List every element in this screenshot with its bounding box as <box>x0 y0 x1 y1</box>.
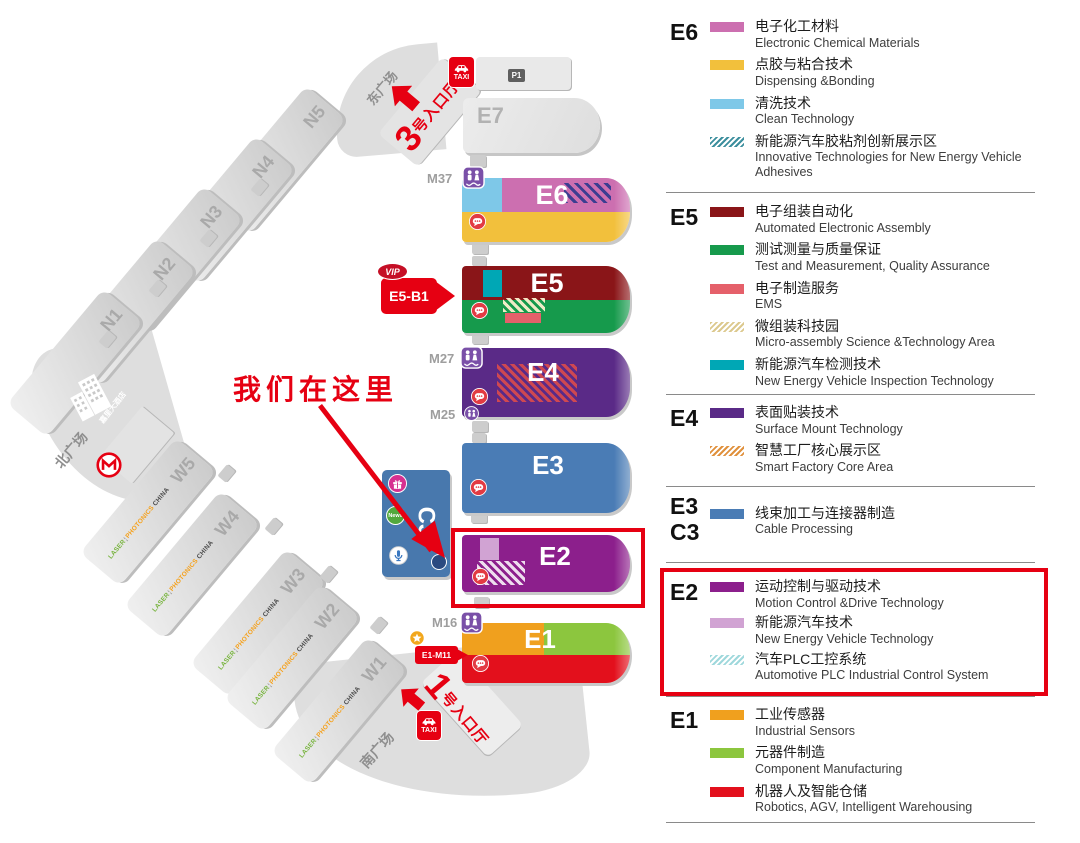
legend-section-e4: E4 表面贴装技术Surface Mount Technology 智慧工厂核心… <box>670 404 1042 481</box>
star-icon <box>409 630 425 646</box>
legend-zh: 工业传感器 <box>755 706 855 724</box>
legend-item: 线束加工与连接器制造Cable Processing <box>710 505 895 537</box>
legend-zh: 电子组装自动化 <box>755 203 931 221</box>
microphone-icon <box>389 546 408 565</box>
vip-gate-e5-b1: E5-B1 VIP <box>379 264 459 318</box>
taxi-car-icon <box>453 64 470 73</box>
hall-e6: E6 <box>462 178 630 242</box>
legend-zh: 新能源汽车检测技术 <box>755 356 994 374</box>
legend-code: E1 <box>670 707 698 733</box>
legend-swatch <box>710 245 744 255</box>
legend-zh: 线束加工与连接器制造 <box>755 505 895 523</box>
expo-floorplan: 东广场 北广场 南广场 嘉里大酒店 3号入口厅 1号入口厅 TAXI TAXI … <box>0 0 1080 843</box>
hall-e7: E7 <box>463 98 600 153</box>
info-dot-icon <box>431 554 447 570</box>
legend-item: 电子制造服务EMS <box>710 280 1042 312</box>
connector <box>264 517 282 536</box>
legend-en: Dispensing &Bonding <box>755 74 875 89</box>
hall-e3-label: E3 <box>518 449 578 481</box>
legend-item: 清洗技术Clean Technology <box>710 95 1042 127</box>
legend-divider <box>666 822 1035 823</box>
legend-section-e6: E6 电子化工材料Electronic Chemical Materials 点… <box>670 18 1042 186</box>
legend-zh: 元器件制造 <box>755 744 902 762</box>
legend-swatch <box>710 360 744 370</box>
legend-zh: 机器人及智能仓储 <box>755 783 972 801</box>
legend-section-e5: E5 电子组装自动化Automated Electronic Assembly … <box>670 203 1042 394</box>
legend-item: 机器人及智能仓储Robotics, AGV, Intelligent Wareh… <box>710 783 1042 815</box>
legend-code: E3C3 <box>670 493 699 546</box>
vip-arrow-icon <box>435 281 455 311</box>
connector <box>472 433 486 443</box>
connector <box>472 421 488 432</box>
hall-n4-label: N4 <box>248 151 279 182</box>
legend-item: 新能源汽车胶粘剂创新展示区Innovative Technologies for… <box>710 133 1042 180</box>
legend-section-e1: E1 工业传感器Industrial Sensors 元器件制造Componen… <box>670 706 1042 821</box>
info-bubble-icon-e4 <box>471 388 488 405</box>
legend-swatch <box>710 322 744 332</box>
hall-e4: E4 <box>462 348 630 417</box>
legend-divider <box>666 486 1035 487</box>
vip-gate-label: E5-B1 <box>381 278 437 314</box>
legend-en: New Energy Vehicle Inspection Technology <box>755 374 994 389</box>
e5-micro-assembly-zone <box>503 298 545 312</box>
e2-legend-highlight-box <box>660 568 1048 696</box>
hall-w5-label: W5 <box>166 453 199 487</box>
legend-swatch <box>710 509 744 519</box>
legend-zh: 电子制造服务 <box>755 280 839 298</box>
taxi-stand-north: TAXI <box>449 57 474 87</box>
legend-swatch <box>710 787 744 797</box>
legend-zh: 电子化工材料 <box>755 18 920 36</box>
legend-en: Robotics, AGV, Intelligent Warehousing <box>755 800 972 815</box>
gate-e1-m11: E1-M11 <box>406 628 476 670</box>
legend-code: E4 <box>670 405 698 431</box>
hall-e3: E3 <box>462 443 630 513</box>
gate-arrow-icon <box>457 649 468 661</box>
restroom-icon-m25 <box>464 406 479 421</box>
legend-item: 测试测量与质量保证Test and Measurement, Quality A… <box>710 241 1042 273</box>
hall-e6-label: E6 <box>522 178 582 212</box>
info-bubble-icon-e6 <box>469 213 486 230</box>
connector <box>472 243 488 254</box>
legend-zh: 点胶与粘合技术 <box>755 56 875 74</box>
legend-divider <box>666 192 1035 193</box>
legend-section-e3-c3: E3C3 线束加工与连接器制造Cable Processing <box>670 492 1042 550</box>
e5-ems-zone <box>505 313 541 323</box>
legend-en: Smart Factory Core Area <box>755 460 893 475</box>
legend-item: 智慧工厂核心展示区Smart Factory Core Area <box>710 442 1042 474</box>
legend-en: Test and Measurement, Quality Assurance <box>755 259 990 274</box>
hall-w1-label: W1 <box>357 652 390 686</box>
info-bubble-icon-e5 <box>471 302 488 319</box>
marker-m25-label: M25 <box>430 407 455 422</box>
legend-swatch <box>710 60 744 70</box>
connector <box>369 616 387 635</box>
connector <box>472 256 486 266</box>
gate-e1-m11-label: E1-M11 <box>415 646 458 664</box>
legend-item: 表面贴装技术Surface Mount Technology <box>710 404 1042 436</box>
laser-photonics-branding: LASER¦PHOTONICS CHINA <box>102 486 171 566</box>
taxi-car-icon <box>421 717 437 726</box>
legend-divider <box>666 562 1035 563</box>
connector <box>217 464 235 483</box>
gift-icon <box>388 474 407 493</box>
hall-w2-label: W2 <box>310 599 343 633</box>
legend-en: EMS <box>755 297 839 312</box>
vip-badge: VIP <box>377 263 408 280</box>
taxi-label: TAXI <box>454 74 469 81</box>
legend-swatch <box>710 710 744 720</box>
legend-zh: 测试测量与质量保证 <box>755 241 990 259</box>
legend-en: Cable Processing <box>755 522 895 537</box>
hall-w3-label: W3 <box>276 564 309 598</box>
legend-code: E6 <box>670 19 698 45</box>
legend-zh: 微组装科技园 <box>755 318 995 336</box>
hall-n2-label: N2 <box>149 253 180 284</box>
laser-photonics-branding: LASER¦PHOTONICS CHINA <box>146 539 215 619</box>
hall-w4-label: W4 <box>210 506 243 540</box>
legend-code: E5 <box>670 204 698 230</box>
legend-en: Automated Electronic Assembly <box>755 221 931 236</box>
e2-map-highlight-box <box>451 528 645 608</box>
hall-e7-label: E7 <box>477 103 504 129</box>
legend-item: 元器件制造Component Manufacturing <box>710 744 1042 776</box>
legend-item: 电子组装自动化Automated Electronic Assembly <box>710 203 1042 235</box>
legend-zh: 智慧工厂核心展示区 <box>755 442 893 460</box>
info-bubble-icon-e3 <box>470 479 487 496</box>
legend-en: Surface Mount Technology <box>755 422 903 437</box>
hall-e1-label: E1 <box>510 623 570 655</box>
taxi-label: TAXI <box>421 727 436 734</box>
legend-item: 微组装科技园Micro-assembly Science &Technology… <box>710 318 1042 350</box>
legend-swatch <box>710 748 744 758</box>
legend-swatch <box>710 22 744 32</box>
restroom-icon-m27 <box>460 346 483 369</box>
legend-item: 电子化工材料Electronic Chemical Materials <box>710 18 1042 50</box>
hall-n5-label: N5 <box>299 101 330 132</box>
marker-m37-label: M37 <box>427 171 452 186</box>
legend-en: Component Manufacturing <box>755 762 902 777</box>
marker-m16-label: M16 <box>432 615 457 630</box>
legend-divider <box>666 394 1035 395</box>
legend-zh: 清洗技术 <box>755 95 854 113</box>
legend-zh: 表面贴装技术 <box>755 404 903 422</box>
e6-dispensing-bonding-zone <box>462 212 630 242</box>
e5-nev-inspection-zone <box>483 270 502 297</box>
legend-en: Micro-assembly Science &Technology Area <box>755 335 995 350</box>
hall-e1: E1 <box>462 623 630 683</box>
legend-swatch <box>710 284 744 294</box>
legend-item: 点胶与粘合技术Dispensing &Bonding <box>710 56 1042 88</box>
connector <box>472 332 488 344</box>
parking-p1-badge: P1 <box>508 69 525 82</box>
legend-en: Electronic Chemical Materials <box>755 36 920 51</box>
legend-item: 工业传感器Industrial Sensors <box>710 706 1042 738</box>
hall-e5: E5 <box>462 266 630 333</box>
legend-en: Innovative Technologies for New Energy V… <box>755 150 1042 180</box>
legend-swatch <box>710 408 744 418</box>
legend-zh: 新能源汽车胶粘剂创新展示区 <box>755 133 1042 151</box>
metro-icon <box>96 452 122 478</box>
hall-n3-label: N3 <box>196 201 227 232</box>
hall-e4-label: E4 <box>513 356 573 388</box>
marker-m27-label: M27 <box>429 351 454 366</box>
taxi-stand-south: TAXI <box>417 711 441 740</box>
legend-en: Industrial Sensors <box>755 724 855 739</box>
we-are-here-text: 我们在这里 <box>233 368 398 408</box>
legend-swatch <box>710 137 744 147</box>
restroom-icon-m37 <box>462 166 485 189</box>
legend-en: Clean Technology <box>755 112 854 127</box>
connector <box>471 512 487 523</box>
legend-swatch <box>710 207 744 217</box>
legend-divider <box>666 696 1035 697</box>
hall-e5-label: E5 <box>517 266 577 300</box>
legend-swatch <box>710 99 744 109</box>
hall-n1-label: N1 <box>96 304 127 335</box>
legend-swatch <box>710 446 744 456</box>
legend-item: 新能源汽车检测技术New Energy Vehicle Inspection T… <box>710 356 1042 388</box>
